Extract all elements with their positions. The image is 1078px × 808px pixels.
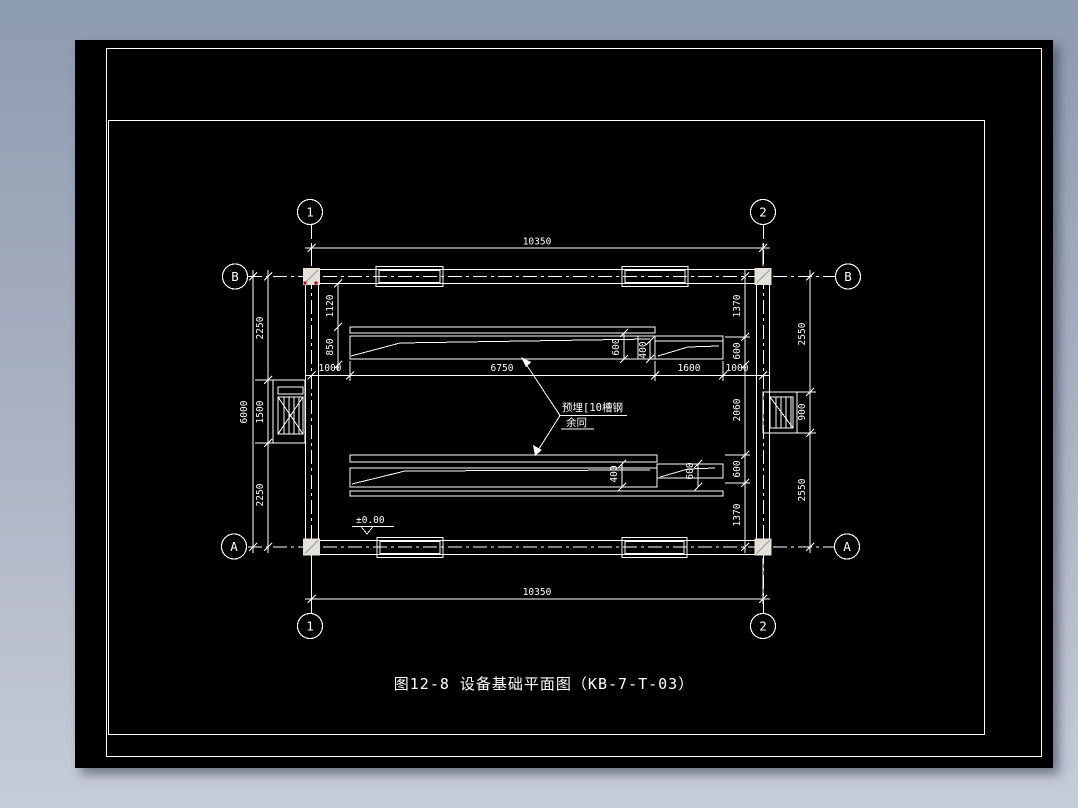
dim-left-seg3: 2250 <box>255 483 266 506</box>
level-mark: ±0.00 <box>352 515 394 534</box>
right-wall-pad <box>763 392 816 433</box>
dim-right-outer-seg1: 2550 <box>797 322 808 345</box>
dim-upper-right-600: 600 <box>611 338 622 355</box>
drawing-title: 图12-8 设备基础平面图（KB-7-T-03） <box>394 675 694 693</box>
dim-right-seg1: 1370 <box>732 294 743 317</box>
bubble-b-right: B <box>844 269 852 284</box>
dim-right-seg5: 1370 <box>732 503 743 526</box>
leader-note: 预埋[10槽钢 余同 <box>521 357 627 456</box>
dim-mid-seg2: 6750 <box>491 363 514 374</box>
note-line2: 余同 <box>566 416 587 429</box>
cad-drawing: 10350 10350 6000 2250 1500 2250 <box>0 0 1078 808</box>
bubble-2-bottom: 2 <box>759 619 767 634</box>
dim-left-seg1: 2250 <box>255 316 266 339</box>
corner-columns <box>303 268 772 556</box>
bubble-1-top: 1 <box>306 205 314 220</box>
dim-upper-left-2: 850 <box>325 338 336 355</box>
note-line1: 预埋[10槽钢 <box>562 401 623 414</box>
dim-left-seg2: 1500 <box>255 400 266 423</box>
cad-viewport: 10350 10350 6000 2250 1500 2250 <box>0 0 1078 808</box>
dim-upper-left-1: 1120 <box>325 294 336 317</box>
grid-bubbles <box>222 200 861 639</box>
bubble-a-right: A <box>843 539 851 554</box>
dim-right-seg4: 600 <box>732 460 743 477</box>
dim-left-total-value: 6000 <box>239 400 250 423</box>
level-value: ±0.00 <box>356 515 385 526</box>
bubble-a-left: A <box>230 539 238 554</box>
lower-foundation-beam <box>350 455 723 496</box>
plan-walls <box>305 270 770 555</box>
dim-right-outer-seg2: 900 <box>797 403 808 420</box>
upper-foundation-beam <box>350 327 723 359</box>
dim-bottom-value: 10350 <box>523 587 552 598</box>
dim-mid-seg3: 1600 <box>678 363 701 374</box>
dim-upper-right-400: 400 <box>638 341 649 358</box>
bubble-2-top: 2 <box>759 205 767 220</box>
dim-lower-400: 400 <box>609 465 620 482</box>
bubble-b-left: B <box>231 269 239 284</box>
dim-right-seg2: 600 <box>732 342 743 359</box>
dim-right-outer-seg3: 2550 <box>797 478 808 501</box>
dim-top-value: 10350 <box>523 237 552 248</box>
wall-beam-boxes <box>376 267 688 558</box>
dim-lower-600: 600 <box>685 462 696 479</box>
dim-upper-beam-left <box>334 280 342 372</box>
dim-right-seg3: 2060 <box>732 398 743 421</box>
dim-mid-seg4: 1000 <box>726 363 749 374</box>
bubble-1-bottom: 1 <box>306 619 314 634</box>
